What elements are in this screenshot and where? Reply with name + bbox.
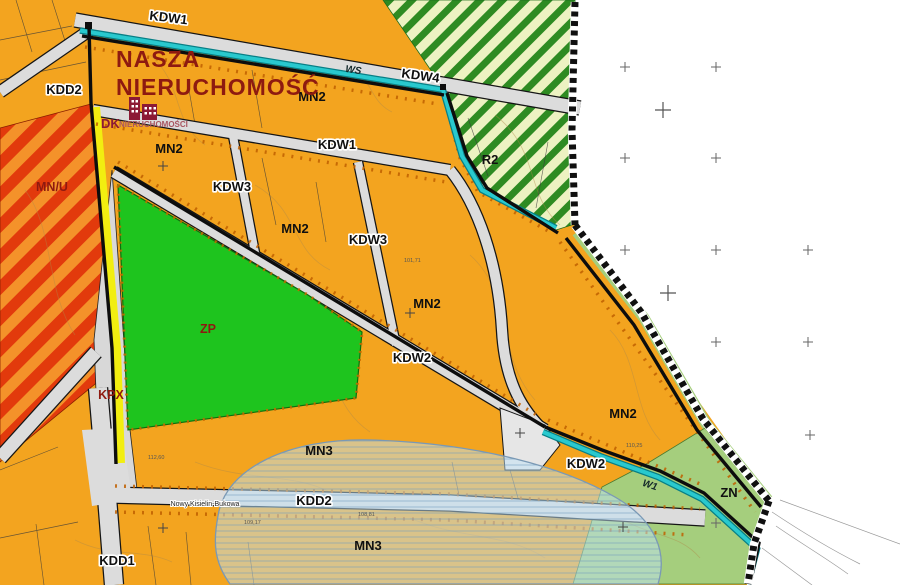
brand-name: NIERUCHOMOŚCI [119, 120, 188, 129]
boundary-marker-nw [85, 22, 92, 29]
map-title-line2: NIERUCHOMOŚĆ [116, 73, 320, 100]
road-label-kdd2-bottom: KDD2 [296, 493, 331, 508]
spot-elevation: 112,60 [148, 455, 164, 461]
map-title-line1: NASZA [116, 46, 200, 72]
zone-label-kpx: KPX [98, 388, 124, 402]
spot-elevation: 109,17 [244, 520, 261, 526]
zone-label-mn3: MN3 [354, 538, 381, 553]
map-viewport: 112,60 108,81 101,71 110,25 109,17 KDW1 … [0, 0, 900, 585]
zone-label-r2: R2 [482, 152, 499, 167]
spot-elevation: 101,71 [404, 258, 421, 264]
boundary-marker-ne [440, 84, 446, 90]
zone-label-zp: ZP [200, 322, 216, 336]
zoning-map-canvas[interactable]: 112,60 108,81 101,71 110,25 109,17 KDW1 … [0, 0, 900, 585]
zone-label-mn3: MN3 [305, 443, 332, 458]
road-label-kdd1: KDD1 [99, 553, 134, 568]
zone-label-zn: ZN [720, 485, 737, 500]
zone-label-mnu: MN/U [36, 180, 68, 194]
road-label-kdw3-a: KDW3 [213, 179, 251, 194]
spot-elevation: 108,81 [358, 512, 375, 518]
zone-label-mn2: MN2 [281, 221, 308, 236]
road-label-kdw2-a: KDW2 [393, 350, 431, 365]
spot-elevation: 110,25 [626, 443, 642, 449]
road-label-kdw3-b: KDW3 [349, 232, 387, 247]
zone-label-mn2: MN2 [155, 141, 182, 156]
road-label-kdd2-top: KDD2 [46, 82, 81, 97]
road-label-kdw1-mid: KDW1 [318, 137, 356, 152]
stream-label-ws: WS [345, 64, 363, 77]
road-label-kdw2-b: KDW2 [567, 456, 605, 471]
zone-label-mn2: MN2 [413, 296, 440, 311]
zone-label-mn2: MN2 [609, 406, 636, 421]
brand-abbr: DK [101, 116, 120, 131]
street-name-label: Nowy Kisielin-Bukowa [171, 501, 240, 508]
